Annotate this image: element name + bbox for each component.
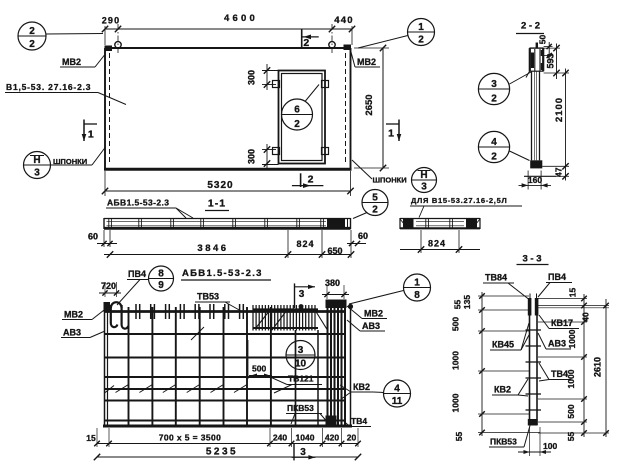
svg-text:2: 2 [303,37,309,49]
svg-text:3: 3 [491,79,497,90]
svg-text:ТВ121: ТВ121 [288,374,314,384]
svg-text:47: 47 [553,167,563,177]
svg-text:2610: 2610 [593,357,603,377]
svg-text:290: 290 [102,16,121,26]
svg-text:2: 2 [491,93,497,104]
svg-text:300: 300 [247,149,257,164]
svg-text:4600: 4600 [224,13,258,24]
svg-text:2: 2 [29,39,35,50]
svg-text:3: 3 [298,345,304,356]
svg-text:1000: 1000 [567,329,577,348]
svg-text:4: 4 [491,137,497,148]
svg-text:8: 8 [158,268,164,279]
svg-text:55: 55 [566,432,576,442]
svg-text:МВ2: МВ2 [364,309,383,319]
svg-text:КВ2: КВ2 [353,382,370,392]
svg-text:КВ2: КВ2 [494,385,511,395]
svg-text:2: 2 [308,174,314,186]
svg-text:160: 160 [528,175,542,185]
svg-text:1: 1 [418,22,424,33]
svg-text:ТВ53: ТВ53 [197,292,219,302]
svg-text:Н: Н [420,170,427,181]
svg-text:ПВ4: ПВ4 [128,269,146,279]
svg-text:11: 11 [392,396,403,407]
svg-text:5235: 5235 [206,447,238,458]
svg-text:500: 500 [566,404,576,418]
svg-text:2: 2 [294,119,300,130]
svg-text:1000: 1000 [451,351,461,370]
svg-text:АВ3: АВ3 [548,339,566,349]
svg-text:ТВ4: ТВ4 [551,369,568,379]
svg-text:1: 1 [88,129,94,141]
svg-text:720: 720 [101,281,116,291]
svg-text:420: 420 [325,433,339,443]
svg-text:60: 60 [88,232,98,242]
svg-text:2: 2 [29,26,35,37]
svg-text:2100: 2100 [554,97,565,122]
svg-text:2650: 2650 [364,94,375,115]
svg-text:593: 593 [546,53,556,68]
svg-text:1: 1 [388,128,394,140]
svg-text:2: 2 [418,34,424,45]
svg-text:ПВ4: ПВ4 [548,272,566,282]
svg-text:10: 10 [295,358,307,369]
svg-text:4: 4 [394,383,400,394]
svg-text:824: 824 [428,239,446,249]
svg-text:240: 240 [273,433,287,443]
svg-text:500: 500 [451,317,461,331]
svg-text:6: 6 [294,104,300,115]
svg-text:1040: 1040 [296,433,315,443]
svg-text:20: 20 [347,433,357,443]
svg-text:700 x 5 = 3500: 700 x 5 = 3500 [159,433,222,443]
svg-text:ТВ4: ТВ4 [351,416,367,426]
svg-text:8: 8 [414,290,420,301]
svg-text:АБВ1.5-53-2.3: АБВ1.5-53-2.3 [182,268,263,279]
svg-text:ПКВ53: ПКВ53 [490,437,517,447]
svg-text:АБВ1.5-53-2.3: АБВ1.5-53-2.3 [107,198,169,208]
svg-text:40: 40 [581,312,591,322]
svg-text:55: 55 [453,300,463,310]
svg-text:300: 300 [247,70,257,85]
svg-text:440: 440 [334,15,353,26]
svg-text:3: 3 [299,289,305,300]
svg-text:МВ2: МВ2 [62,57,81,67]
svg-text:100: 100 [543,441,557,451]
svg-text:5320: 5320 [207,180,233,191]
svg-text:2: 2 [372,204,378,215]
svg-text:ТВ84: ТВ84 [485,273,507,283]
svg-text:55: 55 [454,432,464,442]
svg-text:3: 3 [421,181,427,192]
svg-text:5: 5 [372,192,378,203]
svg-text:650: 650 [327,246,342,256]
svg-text:АВ3: АВ3 [362,321,380,331]
svg-text:2 - 2: 2 - 2 [521,21,540,32]
svg-text:В1,5-53. 27.16-2.3: В1,5-53. 27.16-2.3 [6,82,91,92]
svg-text:1-1: 1-1 [208,198,226,210]
svg-text:15: 15 [568,288,578,298]
svg-text:3 - 3: 3 - 3 [522,254,541,265]
svg-text:2: 2 [491,151,497,162]
svg-text:3: 3 [34,167,40,178]
svg-text:МВ2: МВ2 [64,310,83,320]
svg-text:500: 500 [252,364,266,374]
svg-text:КВ45: КВ45 [492,340,514,350]
svg-text:1000: 1000 [451,393,461,412]
svg-text:3846: 3846 [197,243,228,254]
svg-text:ШПОНКИ: ШПОНКИ [53,157,87,166]
svg-text:50: 50 [538,35,548,45]
svg-text:824: 824 [296,239,314,249]
svg-text:9: 9 [158,280,164,291]
svg-text:135: 135 [462,295,472,309]
svg-text:1: 1 [414,277,420,288]
svg-text:КВ17: КВ17 [551,318,573,328]
svg-text:ПКВ53: ПКВ53 [287,403,314,413]
svg-text:15: 15 [86,433,96,443]
svg-text:ШПОНКИ: ШПОНКИ [373,176,407,185]
svg-text:3: 3 [300,447,306,458]
svg-text:МВ2: МВ2 [357,57,376,67]
svg-text:ДЛЯ В15-53.27.16-2,5Л: ДЛЯ В15-53.27.16-2,5Л [411,196,507,205]
svg-text:АВ3: АВ3 [63,328,81,338]
svg-text:60: 60 [358,231,368,241]
svg-text:Н: Н [33,155,40,166]
